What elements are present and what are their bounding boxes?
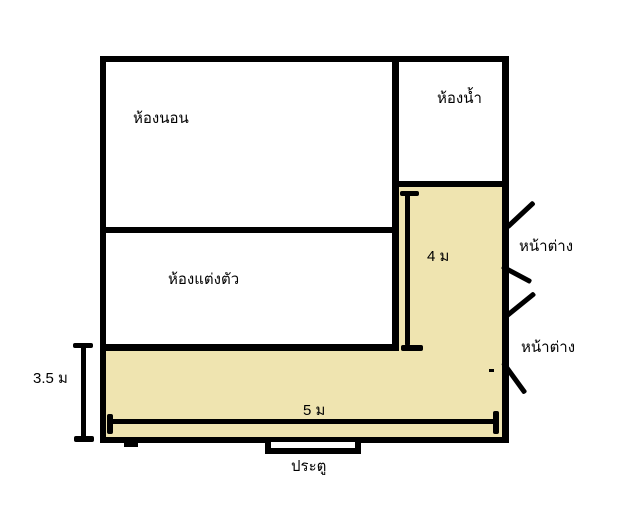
dim-5m-cap-right [493, 411, 499, 434]
window-top-label: หน้าต่าง [519, 238, 573, 256]
window-bottom-label: หน้าต่าง [521, 339, 575, 357]
corridor-top-wall [100, 344, 399, 351]
dim-4m-label: 4 ม [427, 248, 449, 266]
bathroom-bottom-wall [392, 181, 509, 187]
dim-4m-cap-bottom [401, 345, 423, 351]
door-label: ประตู [291, 458, 326, 476]
dim-5m-label: 5 ม [303, 402, 325, 420]
dim-3-5m-label: 3.5 ม [33, 370, 68, 388]
corridor-horizontal-fill [104, 349, 505, 438]
bedroom-label: ห้องนอน [133, 110, 189, 128]
dim-4m-line [405, 193, 410, 346]
dim-3-5m-line [81, 345, 86, 438]
window-bottom-upper-stroke [504, 291, 536, 318]
bathroom-left-wall [392, 56, 399, 351]
outer-left-wall [100, 56, 106, 443]
window-top-upper-stroke [505, 200, 535, 229]
door-shape [265, 442, 361, 454]
outer-right-wall [502, 56, 509, 443]
bedroom-divider-wall [100, 227, 399, 233]
bathroom-label: ห้องน้ำ [437, 90, 482, 108]
stray-mark-bottom-wall [124, 441, 138, 447]
floor-plan: ห้องนอน ห้องน้ำ ห้องแต่งตัว 4 ม 3.5 ม 5 … [0, 0, 621, 510]
dressing-room-label: ห้องแต่งตัว [168, 271, 239, 289]
stray-dash-corridor [489, 369, 494, 372]
dim-5m-cap-left [107, 414, 113, 434]
outer-top-wall [100, 56, 509, 62]
dim-3-5m-cap-bottom [74, 436, 94, 442]
